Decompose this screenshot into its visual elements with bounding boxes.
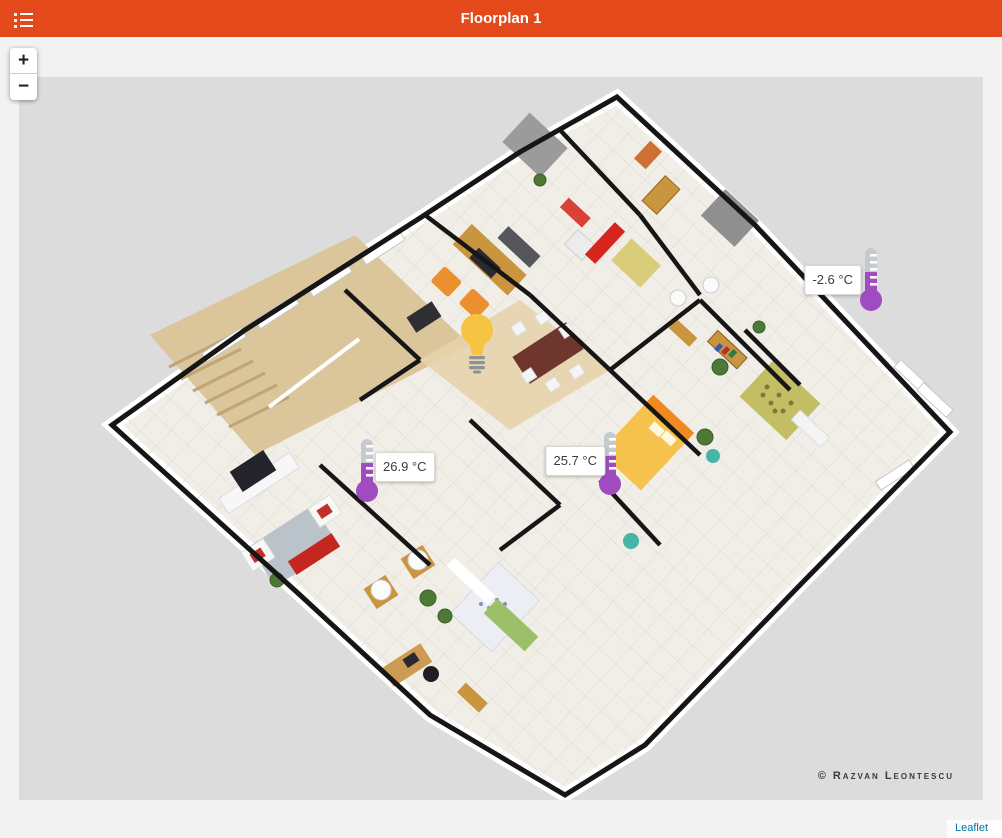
temperature-tooltip: 26.9 °C (375, 452, 435, 482)
leaflet-link[interactable]: Leaflet (955, 822, 988, 834)
leaflet-attribution: Leaflet (947, 820, 1002, 838)
floorplan-render (19, 77, 983, 800)
lightbulb-icon (459, 313, 495, 375)
floorplan-credit: © Razvan Leontescu (818, 770, 954, 782)
zoom-out-button[interactable]: − (10, 74, 37, 100)
page-title: Floorplan 1 (0, 0, 1002, 37)
floorplan-map[interactable]: + − (0, 37, 1002, 838)
temperature-tooltip: 25.7 °C (545, 446, 605, 476)
zoom-control: + − (10, 48, 37, 100)
temperature-tooltip: -2.6 °C (804, 265, 861, 295)
floorplan-image: -2.6 °C 26.9 °C (19, 77, 983, 800)
app-header: Floorplan 1 (0, 0, 1002, 37)
thermometer-icon (857, 246, 885, 312)
zoom-in-button[interactable]: + (10, 48, 37, 74)
